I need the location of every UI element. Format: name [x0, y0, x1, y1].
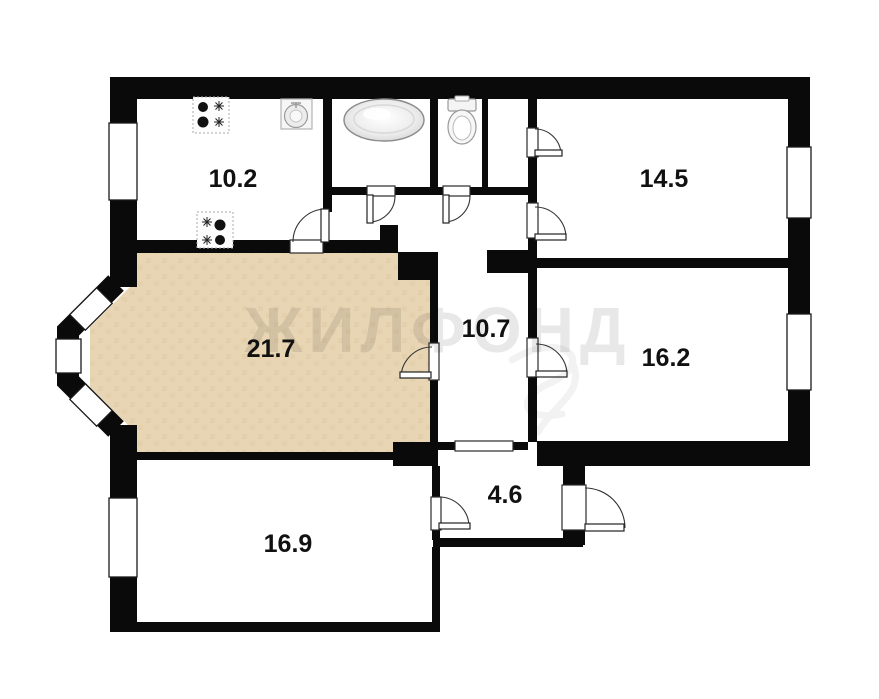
- stove-burners-top-icon: [193, 97, 229, 133]
- entry-hall-passage-opening: [455, 441, 513, 451]
- wall-16-9-right-bottom: [432, 530, 440, 540]
- floor-plan-drawing: ЖИЛФОНД 10.2 14.5 21.7 10.7 16.2 16.9 4.…: [0, 0, 879, 699]
- wall-corner-block: [393, 442, 438, 466]
- wall-bottom-entry: [433, 538, 583, 547]
- wall-bottom-16-2: [537, 441, 810, 466]
- wall-bottom-16-9: [110, 622, 440, 632]
- room-14-5-window: [787, 147, 811, 218]
- wc-door: [443, 195, 470, 223]
- wall-16-9-right-top: [432, 466, 440, 497]
- room-label-hallway: 10.7: [462, 315, 511, 343]
- bathtub-icon: [344, 99, 424, 141]
- wall-wc-closet: [482, 99, 488, 187]
- kitchen-sink-icon: [281, 99, 312, 129]
- floor-plan: ЖИЛФОНД 10.2 14.5 21.7 10.7 16.2 16.9 4.…: [0, 0, 879, 699]
- room-16-9-window: [109, 498, 137, 577]
- wall-21-7-16-9: [110, 452, 393, 460]
- room-14-5-door: [535, 207, 566, 240]
- room-14-5-door-opening: [527, 203, 538, 238]
- toilet-icon: [448, 96, 476, 144]
- room-label-kitchen: 10.2: [209, 165, 258, 193]
- room-label-16-9: 16.9: [264, 530, 313, 558]
- closet-door: [535, 129, 562, 156]
- bathroom-door: [367, 195, 395, 223]
- wall-left-of-14-5: [528, 99, 537, 268]
- kitchen-door: [293, 209, 329, 242]
- kitchen-window: [109, 123, 137, 200]
- room-16-2-window: [787, 314, 811, 390]
- wall-entry-top: [563, 466, 585, 485]
- kitchen-door-opening: [290, 240, 323, 253]
- entrance-door-opening: [562, 485, 586, 530]
- wall-pillar: [398, 252, 438, 280]
- wall-duct: [380, 225, 398, 242]
- wall-kitchen-bath: [323, 99, 332, 212]
- wall-step: [432, 547, 440, 627]
- entrance-door: [585, 488, 625, 531]
- wall-bath-bottom: [323, 187, 537, 195]
- room-label-14-5: 14.5: [640, 165, 689, 193]
- bay-window-middle: [56, 339, 81, 373]
- wall-14-5-16-2: [537, 258, 788, 268]
- room-label-entry-hall: 4.6: [488, 481, 523, 509]
- room-label-16-2: 16.2: [642, 344, 691, 372]
- wall-bath-wc: [430, 99, 438, 187]
- stove-burners-bottom-icon: [197, 212, 233, 248]
- room-label-living-room: 21.7: [247, 335, 296, 363]
- room-16-9-door: [439, 497, 470, 529]
